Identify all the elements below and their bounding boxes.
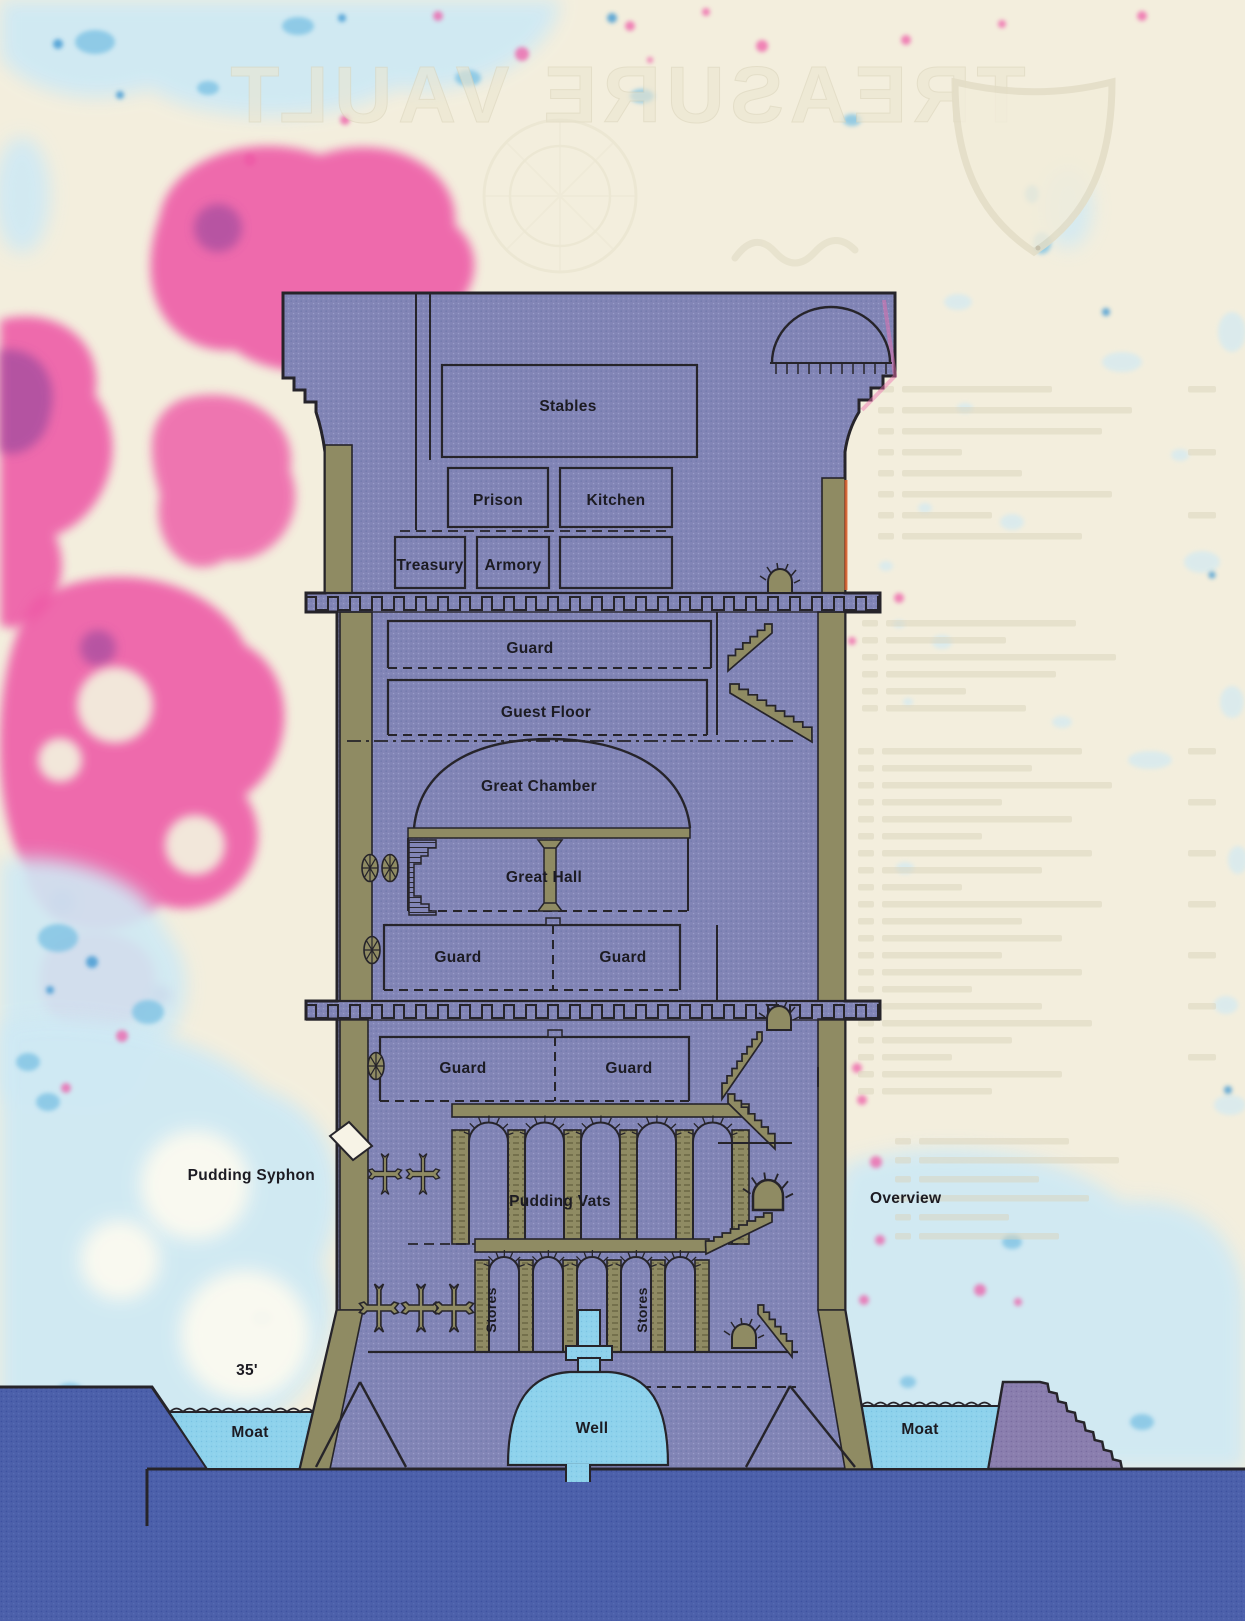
label-guard-mid-left: Guard — [434, 949, 481, 966]
label-overview: Overview — [870, 1190, 942, 1207]
label-stores-right: Stores — [634, 1287, 650, 1332]
ghost-mirrored-title: TREASURE VAULT — [224, 50, 1025, 139]
label-guard-mid-right: Guard — [599, 949, 646, 966]
label-moat-right: Moat — [901, 1421, 938, 1438]
label-height-35ft: 35' — [236, 1362, 258, 1379]
label-pudding-syphon: Pudding Syphon — [188, 1167, 315, 1184]
label-armory: Armory — [485, 557, 542, 574]
label-guard-low-left: Guard — [439, 1060, 486, 1077]
castle-cutaway-diagram: TREASURE VAULT Stables Prison Kitchen Tr… — [0, 0, 1245, 1621]
label-guard-upper: Guard — [506, 640, 553, 657]
label-treasury: Treasury — [396, 557, 463, 574]
scanned-page: TREASURE VAULT Stables Prison Kitchen Tr… — [0, 0, 1245, 1621]
label-well: Well — [576, 1420, 609, 1437]
label-guard-low-right: Guard — [605, 1060, 652, 1077]
label-great-hall: Great Hall — [506, 869, 582, 886]
label-stores-left: Stores — [483, 1287, 499, 1332]
label-stables: Stables — [539, 398, 596, 415]
label-great-chamber: Great Chamber — [481, 778, 597, 795]
ground — [0, 1469, 1245, 1621]
label-kitchen: Kitchen — [587, 492, 646, 509]
label-guest-floor: Guest Floor — [501, 704, 591, 721]
label-pudding-vats: Pudding Vats — [509, 1193, 611, 1210]
tower-drawing-layer — [283, 293, 895, 1482]
well-chamber — [508, 1372, 668, 1465]
label-prison: Prison — [473, 492, 523, 509]
label-moat-left: Moat — [231, 1424, 268, 1441]
